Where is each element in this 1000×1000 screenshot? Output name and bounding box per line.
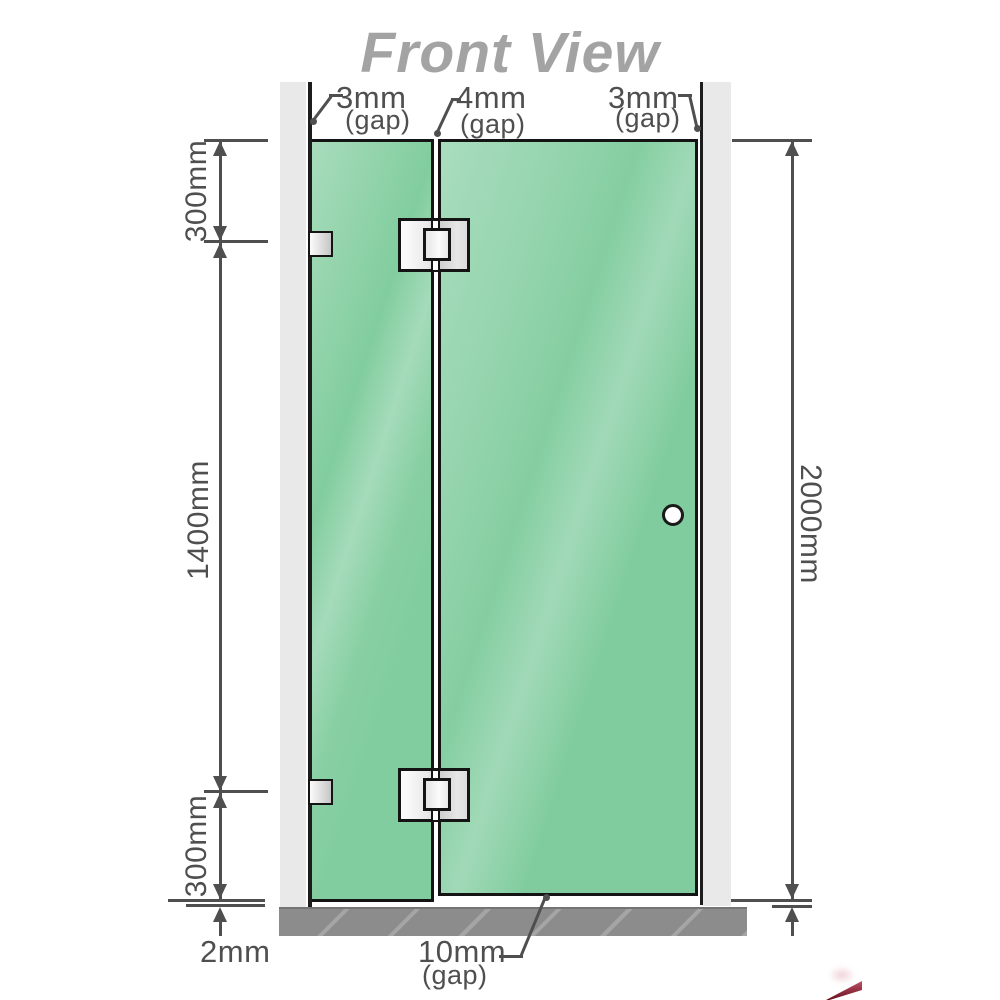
- dim-label-300-bottom: 300mm: [180, 766, 214, 926]
- dim-line-stub: [791, 921, 794, 936]
- dim-label-2mm: 2mm: [200, 934, 270, 970]
- leader-line: [436, 99, 453, 133]
- dim-arrow: [785, 907, 799, 922]
- watermark-smudge: [828, 966, 856, 984]
- dim-tick: [732, 139, 812, 142]
- leader-dot: [543, 894, 550, 901]
- dim-arrow: [213, 776, 227, 791]
- dim-tick: [731, 899, 812, 902]
- dim-arrow: [213, 884, 227, 899]
- dim-label-300-top: 300mm: [180, 111, 214, 271]
- leader-line: [451, 98, 461, 101]
- gap-suffix-middle: (gap): [460, 109, 526, 140]
- door-handle-icon: [662, 504, 684, 526]
- dim-arrow: [213, 243, 227, 258]
- dim-arrow: [213, 226, 227, 241]
- leader-line: [499, 955, 523, 958]
- leader-line: [329, 94, 343, 97]
- right-wall-edge-line: [700, 82, 703, 905]
- leader-line: [312, 96, 332, 121]
- wall-bracket-top: [308, 231, 333, 257]
- gap-suffix-left: (gap): [345, 105, 411, 136]
- dim-label-2000: 2000mm: [793, 444, 827, 604]
- hinge-knuckle-bottom: [423, 778, 451, 811]
- shower-screen-front-view-diagram: Front View 300mm 1400mm 300mm 2mm 20: [0, 0, 1000, 1000]
- wall-bracket-bottom: [308, 779, 333, 805]
- right-wall: [703, 82, 731, 906]
- leader-line: [689, 96, 699, 128]
- dim-arrow: [213, 793, 227, 808]
- gap-suffix-right: (gap): [615, 103, 681, 134]
- floor-base: [279, 907, 747, 936]
- hinge-knuckle-top: [423, 228, 451, 261]
- leader-dot: [694, 125, 701, 132]
- left-wall: [280, 82, 306, 907]
- door-glass-panel: [438, 139, 698, 896]
- dim-arrow: [213, 141, 227, 156]
- dim-arrow: [785, 884, 799, 899]
- page-title: Front View: [310, 20, 710, 86]
- dim-arrow: [785, 141, 799, 156]
- gap-suffix-bottom: (gap): [422, 960, 488, 991]
- dim-arrow: [213, 907, 227, 922]
- dim-label-1400: 1400mm: [182, 440, 216, 600]
